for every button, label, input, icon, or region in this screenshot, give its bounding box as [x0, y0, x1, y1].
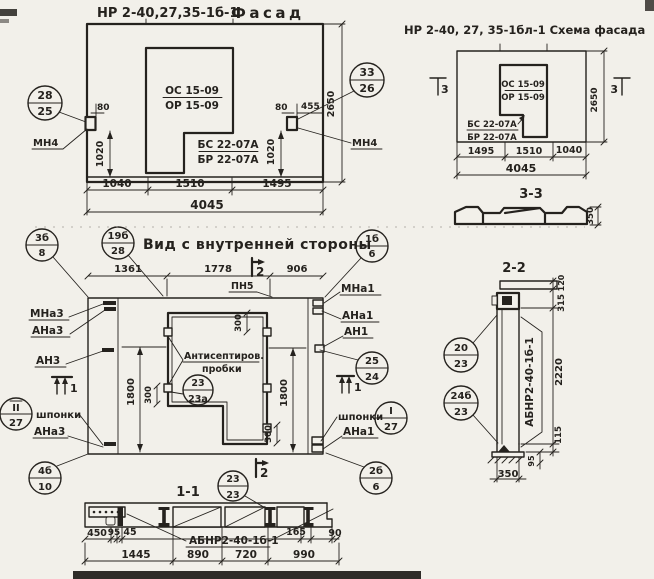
callout-top: 33 [359, 66, 374, 79]
facade-title-word: Фасад [231, 4, 305, 22]
leader-line [171, 392, 183, 394]
dim-165: 165 [286, 527, 306, 538]
edge-keys-left [102, 301, 116, 446]
callout-bot: 23 [454, 407, 468, 418]
scan-smudge [0, 9, 17, 16]
leader-line [33, 436, 103, 447]
dim-1040: 1040 [102, 178, 131, 190]
dim-300-left-line [154, 383, 160, 407]
callout-top: 25 [365, 356, 379, 367]
drawing-canvas: НР 2-40,27,35-1б-1 Фасад ОС 15-09 ОР 15-… [0, 0, 654, 579]
panel-mark-label: АБНР2-40-1б-1 [189, 535, 279, 547]
dim-890: 890 [187, 549, 209, 561]
dim-1020-left: 1020 [95, 140, 106, 167]
leader-line [169, 338, 183, 384]
schema-mark-bs: БС 22-07А [467, 120, 517, 130]
callout-top: 28 [37, 89, 52, 102]
top-node-core [502, 296, 512, 305]
label-pn5: ПН5 [231, 281, 254, 292]
top-shelf [500, 281, 557, 289]
dim-1800-right: 1800 [279, 379, 290, 407]
dim-45: 45 [123, 527, 136, 538]
label-ana1-2: АНа1 [343, 426, 374, 438]
section-marker-label: 1 [70, 382, 78, 395]
end-bar [118, 507, 124, 526]
label-mn4-left: МН4 [33, 138, 58, 149]
arrowhead [107, 169, 113, 177]
dim-2220: 2220 [554, 358, 565, 386]
inner-outline [88, 298, 323, 454]
callout-top: I [389, 406, 393, 417]
label-an1: АН1 [344, 326, 368, 338]
callout-bot: 26 [359, 82, 375, 95]
dim-80-left: 80 [97, 103, 110, 113]
label-mna1: МНа1 [341, 283, 375, 295]
callout-bot: 6 [369, 249, 376, 260]
dim-720: 720 [235, 549, 257, 561]
base-plate [492, 452, 524, 457]
dim-1495: 1495 [262, 178, 291, 190]
panel-mark-label: АБНР2-40-1б-1 [524, 337, 536, 427]
dim-906: 906 [287, 264, 308, 275]
dim-300-left: 300 [144, 386, 154, 404]
arrowhead [278, 131, 284, 139]
section-1-1: 1-1 23 23 АБНР2 [82, 471, 342, 565]
callout-top: 24б [451, 390, 472, 402]
inner-title: Вид с внутренней стороны [143, 237, 372, 253]
dim-120: 120 [557, 274, 566, 291]
scan-smudge [0, 19, 9, 23]
top-node-tab [492, 296, 497, 305]
dim-300-bottom-line [274, 422, 280, 446]
inner-view: Вид с внутренней стороны 1361 1 [0, 227, 407, 494]
scan-smudge [645, 0, 654, 11]
callout-bot: 25 [37, 105, 52, 118]
callout-bot: 6 [373, 482, 380, 493]
label-shponki-left: шпонки [36, 410, 81, 421]
dim-1445: 1445 [121, 549, 150, 561]
callout-top: II [12, 403, 19, 414]
dim-4045: 4045 [506, 162, 537, 175]
leader-line [323, 436, 378, 449]
dim-2650: 2650 [326, 90, 337, 117]
facade-mark-or: ОР 15-09 [165, 100, 219, 112]
label-ana1: АНа1 [342, 310, 373, 322]
section-2-2-title: 2-2 [502, 261, 526, 276]
facade-title-code: НР 2-40,27,35-1б-1 [97, 6, 238, 21]
dim-1510: 1510 [175, 178, 204, 190]
dim-1800-left: 1800 [126, 378, 137, 406]
label-ana3: АНа3 [32, 325, 63, 337]
arrowhead [137, 444, 143, 452]
schema-mark-br: БР 22-07А [467, 133, 517, 143]
callout-bot: 23а [188, 394, 208, 405]
leader-line [320, 350, 358, 360]
callout-top: 4б [38, 465, 52, 477]
label-an3: АН3 [36, 355, 60, 367]
dim-2650: 2650 [590, 87, 600, 112]
scan-edge-bar [73, 571, 421, 579]
dim-90: 90 [328, 528, 342, 539]
dim-1778: 1778 [204, 264, 232, 275]
label-antiseptic-1: Антисептиров. [184, 351, 264, 362]
dim-80-right: 80 [275, 103, 288, 113]
arrowhead [278, 169, 284, 177]
facade-mark-os: ОС 15-09 [165, 85, 219, 97]
callout-bot: 27 [384, 422, 398, 433]
section-marker-label: 2 [256, 265, 264, 279]
callout-top: 23 [191, 378, 204, 389]
dim-line [85, 273, 326, 296]
arrowhead [290, 444, 296, 452]
callout-top: 2б [369, 465, 383, 477]
inner-window-inner-line [172, 317, 263, 440]
schema-top-ticks [500, 44, 547, 51]
callout-bot: 23 [454, 359, 468, 370]
callout-bot: 10 [38, 482, 52, 493]
leader-line [57, 454, 88, 466]
dim-315: 315 [557, 294, 567, 312]
callout-bot: 23 [226, 490, 239, 501]
callout-top: 3б [35, 232, 49, 244]
label-antiseptic-2: пробки [202, 364, 242, 375]
section-marker-label: 3 [610, 83, 618, 96]
dim-1361: 1361 [114, 264, 142, 275]
blueprint-page: НР 2-40,27,35-1б-1 Фасад ОС 15-09 ОР 15-… [0, 0, 654, 579]
schema-mark-or: ОР 15-09 [501, 93, 545, 103]
leader-line [53, 257, 88, 297]
callout-bot: 24 [365, 372, 379, 383]
section-marker-label: 3 [441, 83, 449, 96]
section-1-1-title: 1-1 [176, 485, 200, 500]
inner-window-opening [168, 313, 267, 444]
leader-line [128, 255, 163, 296]
leader-line [473, 415, 498, 443]
bottom-wedge [498, 445, 510, 452]
arrowhead [290, 348, 296, 356]
callout-top: 23 [226, 474, 239, 485]
arrowhead [137, 347, 143, 355]
leader-line [473, 315, 497, 343]
dim-1510: 1510 [516, 146, 543, 157]
dim-990: 990 [293, 549, 315, 561]
section-marker-label: 1 [354, 381, 362, 394]
section-3-3-title: 3-3 [519, 187, 543, 202]
leader-line [323, 336, 373, 347]
schema-view: НР 2-40, 27, 35-1бл-1 Схема фасада ОС 15… [404, 23, 645, 228]
dim-350: 350 [498, 469, 519, 480]
edge-tabs-right [312, 300, 324, 452]
schema-title: НР 2-40, 27, 35-1бл-1 Схема фасада [404, 23, 645, 37]
dim-1495: 1495 [468, 146, 494, 157]
ground-hatch [488, 457, 522, 463]
dim-300-top: 300 [234, 314, 244, 332]
right-end-step [327, 503, 332, 527]
facade-mark-bs: БС 22-07А [197, 139, 259, 151]
opening-keys [164, 328, 271, 432]
callout-top: 20 [454, 343, 468, 354]
label-mn4-right: МН4 [352, 138, 377, 149]
dim-115: 115 [554, 426, 564, 444]
label-shponki-right: шпонки [338, 412, 383, 423]
facade-view: НР 2-40,27,35-1б-1 Фасад ОС 15-09 ОР 15-… [28, 4, 384, 215]
callout-bot: 8 [39, 248, 46, 259]
hanger-tab [106, 517, 115, 525]
panel-block [277, 507, 304, 527]
panel-ribs [118, 298, 308, 454]
label-mna3: МНа3 [30, 308, 64, 320]
leader-line [59, 112, 86, 122]
dim-350: 350 [586, 207, 596, 225]
dim-1020-right: 1020 [266, 138, 277, 165]
section-3-3-profile [455, 207, 587, 224]
dim-455: 455 [301, 102, 320, 112]
callout-top: 19б [108, 230, 129, 242]
anchor-marker-right [287, 117, 297, 130]
section-2-2: 2-2 АБНР2-40-1б-1 120 315 2220 115 95 35… [444, 261, 567, 482]
anchor-marker-left [86, 117, 96, 130]
leader-line [326, 453, 364, 467]
label-ana3-2: АНа3 [34, 426, 65, 438]
section-marker-label: 2 [260, 466, 268, 480]
leader-line [229, 292, 272, 297]
callout-bot: 28 [111, 246, 125, 257]
dim-95: 95 [527, 455, 536, 467]
schema-mark-os: ОС 15-09 [501, 80, 545, 90]
dim-300-bottom: 300 [264, 425, 274, 443]
panel-body [497, 309, 519, 444]
callout-bot: 27 [9, 418, 23, 429]
dim-1040: 1040 [556, 145, 583, 156]
dim-95: 95 [108, 528, 121, 538]
arrowhead [107, 131, 113, 139]
dim-450: 450 [87, 528, 107, 539]
facade-mark-br: БР 22-07А [197, 154, 259, 166]
callout-top: 1б [365, 233, 379, 245]
dim-4045: 4045 [190, 198, 223, 212]
